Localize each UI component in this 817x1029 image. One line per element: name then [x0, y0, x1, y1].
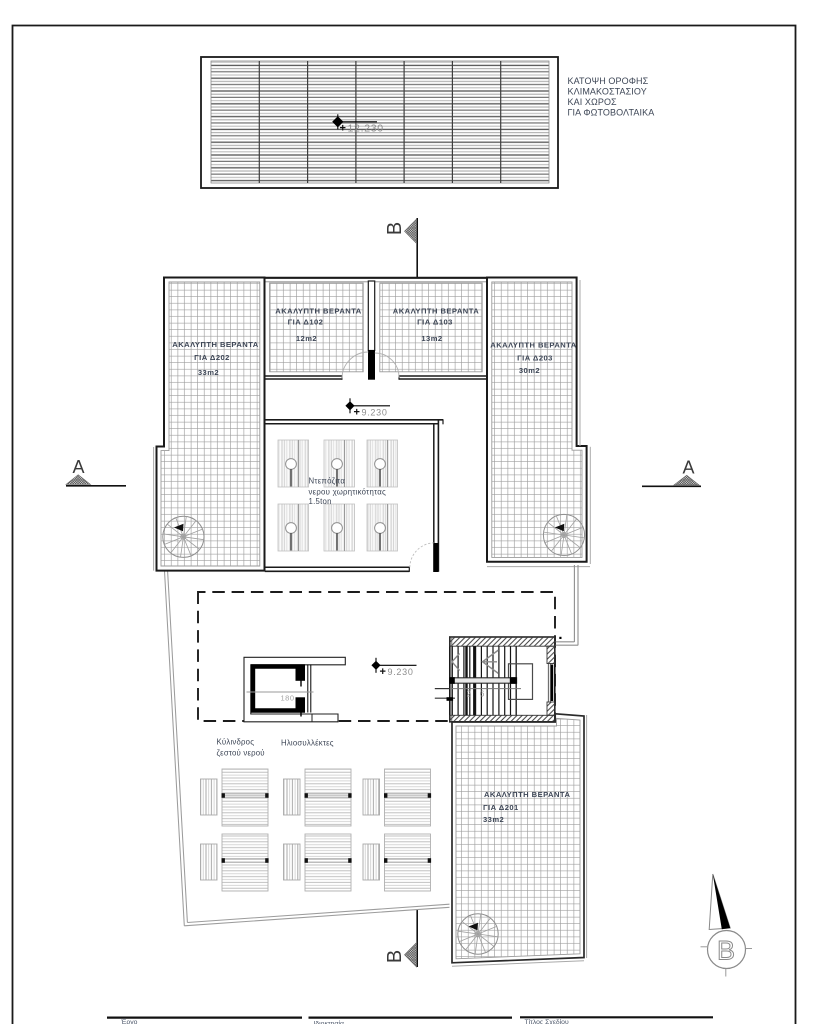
svg-text:ΓΙΑ Δ203: ΓΙΑ Δ203	[517, 354, 553, 363]
svg-text:ΚΛΙΜΑΚΟΣΤΑΣΙΟΥ: ΚΛΙΜΑΚΟΣΤΑΣΙΟΥ	[568, 87, 647, 97]
svg-text:Έργο: Έργο	[120, 1019, 138, 1024]
svg-text:Τίτλος Σχεδίου: Τίτλος Σχεδίου	[525, 1018, 569, 1024]
svg-text:+: +	[380, 666, 386, 678]
svg-text:+: +	[340, 122, 346, 134]
svg-text:ΓΙΑ Δ201: ΓΙΑ Δ201	[483, 803, 519, 812]
svg-text:B: B	[384, 950, 406, 963]
svg-text:B: B	[384, 222, 406, 235]
svg-text:Ντεπόζιτα: Ντεπόζιτα	[309, 477, 346, 486]
svg-text:30m2: 30m2	[519, 366, 540, 375]
svg-text:ΓΙΑ Δ202: ΓΙΑ Δ202	[194, 353, 230, 362]
svg-text:13m2: 13m2	[421, 334, 442, 343]
svg-text:2 6: 2 6	[467, 689, 488, 699]
svg-text:+: +	[354, 406, 360, 418]
svg-text:ΚΑΙ ΧΩΡΟΣ: ΚΑΙ ΧΩΡΟΣ	[568, 97, 618, 107]
svg-text:B: B	[717, 936, 735, 966]
svg-text:ΓΙΑ ΦΩΤΟΒΟΛΤΑΙΚΑ: ΓΙΑ ΦΩΤΟΒΟΛΤΑΙΚΑ	[568, 108, 655, 118]
svg-text:ΑΚΑΛΥΠΤΗ ΒΕΡΑΝΤΑ: ΑΚΑΛΥΠΤΗ ΒΕΡΑΝΤΑ	[172, 340, 258, 349]
svg-text:33m2: 33m2	[198, 368, 219, 377]
svg-text:A: A	[682, 458, 694, 478]
svg-text:12m2: 12m2	[296, 334, 317, 343]
svg-text:ΚΑΤΟΨΗ ΟΡΟΦΗΣ: ΚΑΤΟΨΗ ΟΡΟΦΗΣ	[568, 76, 649, 86]
svg-text:33m2: 33m2	[483, 815, 504, 824]
svg-text:Κύλινδρος: Κύλινδρος	[217, 738, 255, 747]
svg-text:Ηλιοσυλλέκτες: Ηλιοσυλλέκτες	[281, 739, 334, 748]
svg-text:A: A	[72, 457, 84, 477]
svg-text:1.5ton: 1.5ton	[309, 497, 332, 506]
svg-text:ΑΚΑΛΥΠΤΗ ΒΕΡΑΝΤΑ: ΑΚΑΛΥΠΤΗ ΒΕΡΑΝΤΑ	[484, 790, 570, 799]
svg-text:ζεστού νερού: ζεστού νερού	[217, 749, 265, 758]
svg-text:9.230: 9.230	[388, 667, 414, 677]
svg-text:9.230: 9.230	[362, 407, 388, 417]
svg-text:12.230: 12.230	[348, 122, 384, 134]
svg-text:νερου χωρητικότητας: νερου χωρητικότητας	[309, 488, 387, 497]
svg-text:180: 180	[281, 694, 295, 703]
svg-text:ΑΚΑΛΥΠΤΗ ΒΕΡΑΝΤΑ: ΑΚΑΛΥΠΤΗ ΒΕΡΑΝΤΑ	[393, 307, 479, 316]
svg-text:ΓΙΑ Δ103: ΓΙΑ Δ103	[417, 318, 453, 327]
svg-text:ΑΚΑΛΥΠΤΗ ΒΕΡΑΝΤΑ: ΑΚΑΛΥΠΤΗ ΒΕΡΑΝΤΑ	[275, 307, 361, 316]
svg-text:Ιδιοκτησία: Ιδιοκτησία	[314, 1020, 345, 1025]
svg-text:ΑΚΑΛΥΠΤΗ ΒΕΡΑΝΤΑ: ΑΚΑΛΥΠΤΗ ΒΕΡΑΝΤΑ	[490, 341, 576, 350]
svg-text:ΓΙΑ Δ102: ΓΙΑ Δ102	[288, 318, 324, 327]
